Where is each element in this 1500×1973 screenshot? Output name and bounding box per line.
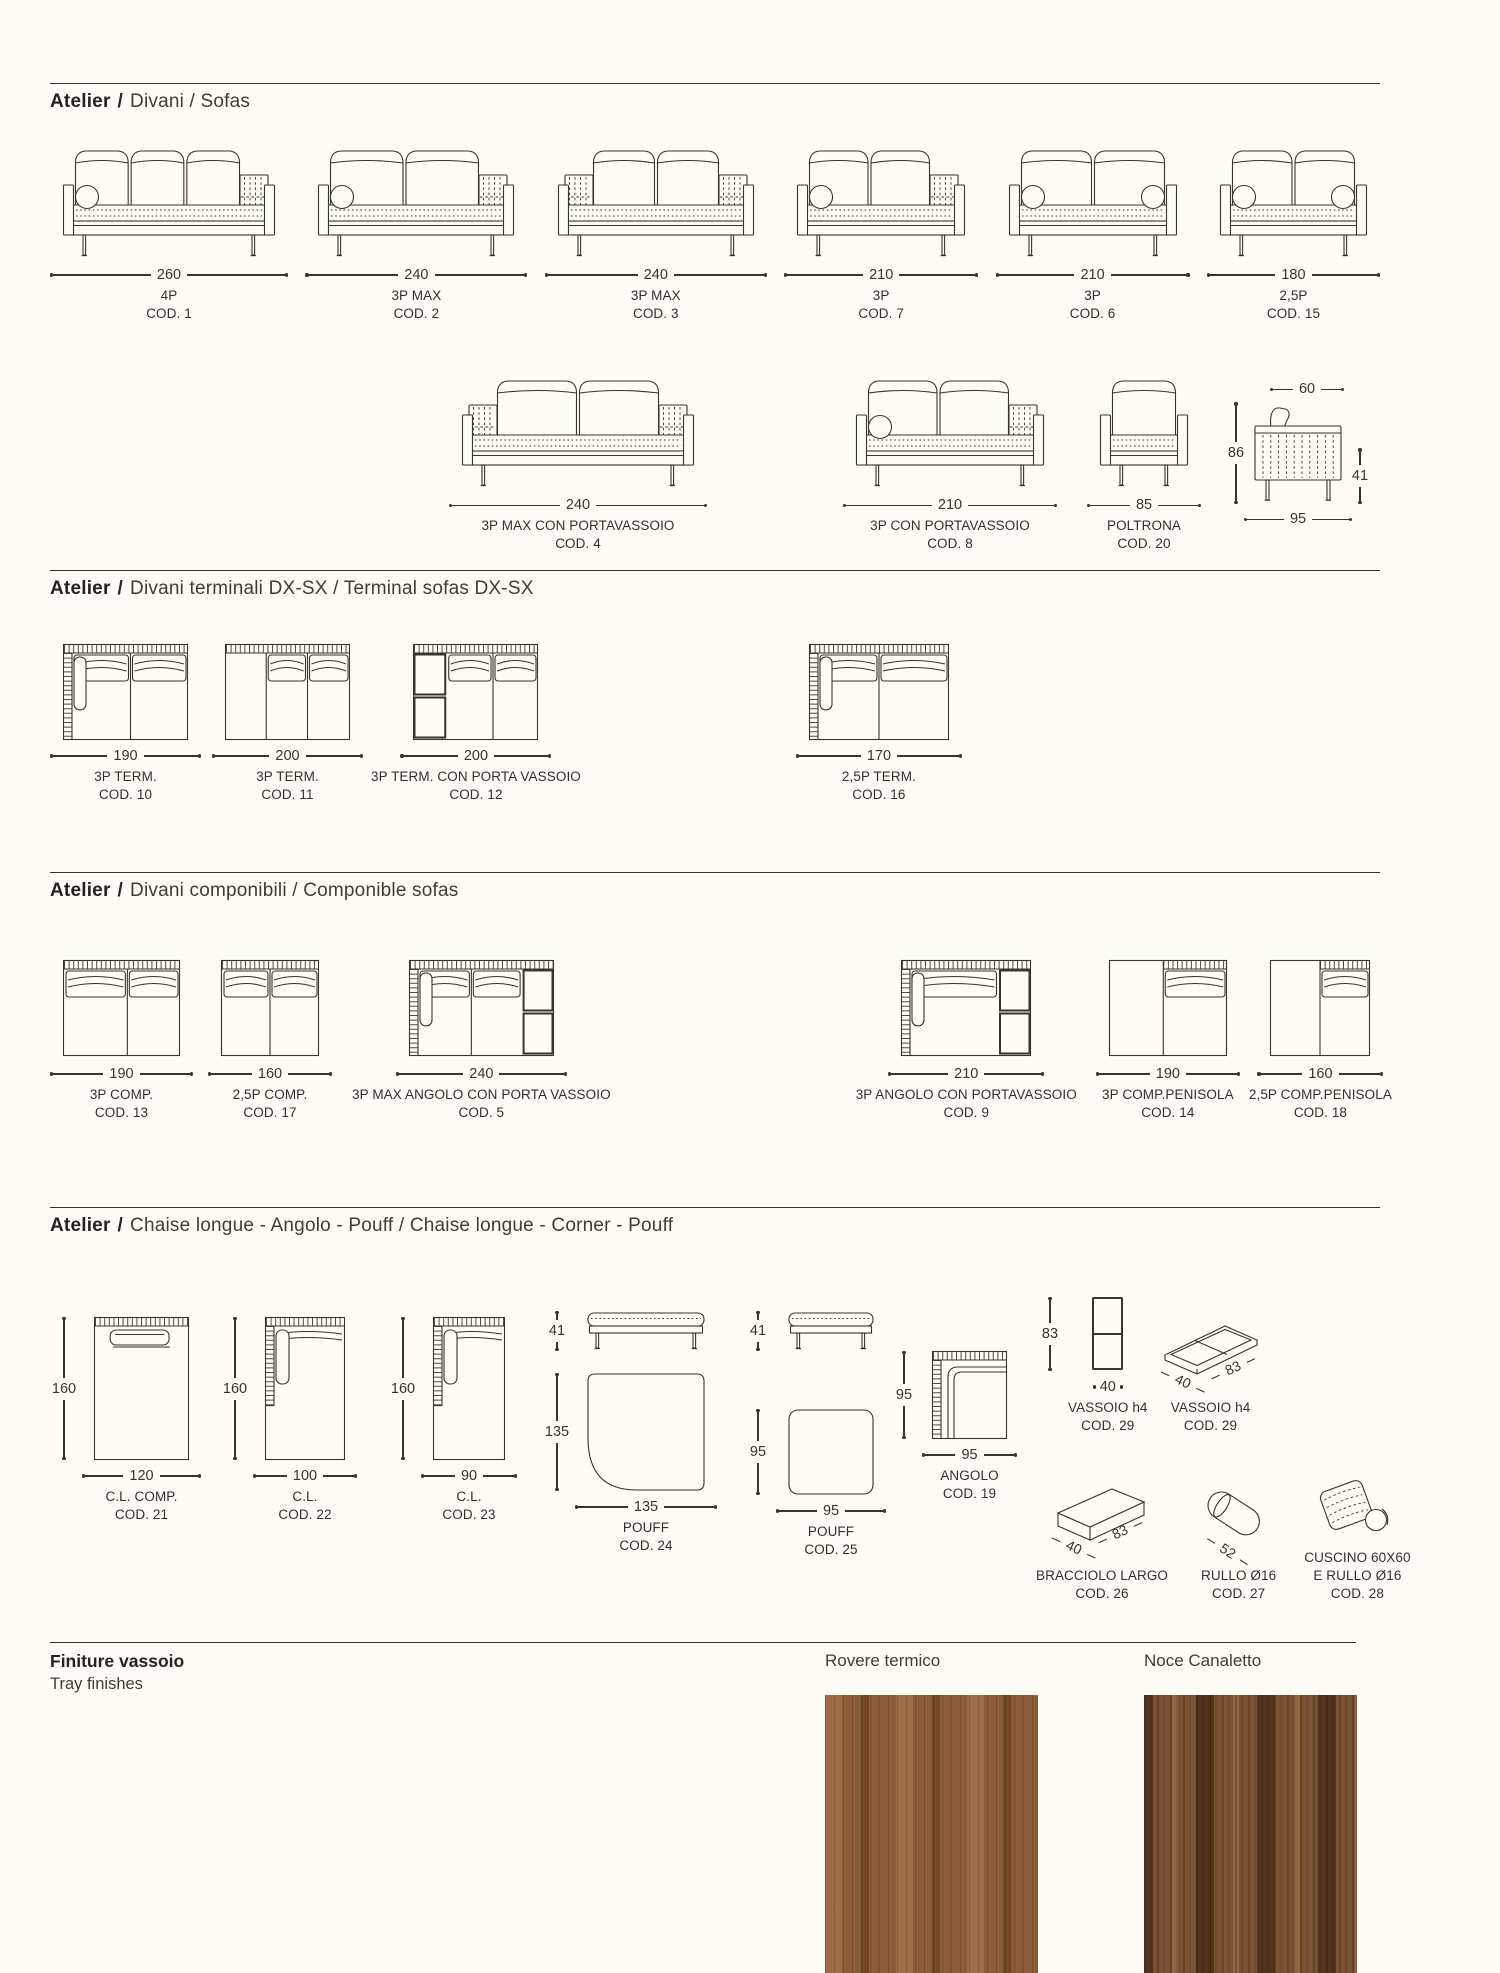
item-label: ANGOLOCOD. 19 — [940, 1467, 998, 1503]
dimension-horizontal: 240 — [305, 267, 527, 283]
wood-swatch-rovere-termico — [825, 1695, 1038, 1973]
product-item-cod17: 1602,5P COMP.COD. 17 — [208, 960, 332, 1122]
section-finiture: Finiture vassoio Tray finishes Rovere te… — [0, 1642, 1500, 1973]
sofa-top-diagram — [63, 960, 180, 1056]
dimension-horizontal: 190 — [1096, 1066, 1240, 1082]
catalog-page: Atelier/Divani / Sofas 2604PCOD. 12403P … — [0, 0, 1500, 1973]
dimension-vertical: 41 — [1346, 448, 1374, 504]
svg-text:40: 40 — [1064, 1537, 1085, 1558]
dimension-horizontal: 240 — [396, 1066, 567, 1082]
sofa-front-diagram — [462, 369, 694, 489]
tray-flat-diagram — [1092, 1297, 1123, 1371]
diagram-row: 160120C.L. COMP.COD. 21160100C.L.COD. 22… — [50, 1283, 1500, 1603]
item-label: POLTRONACOD. 20 — [1107, 517, 1181, 553]
product-item-cod13: 1903P COMP.COD. 13 — [50, 960, 193, 1122]
dimension-horizontal: 200 — [400, 748, 551, 764]
dimension-horizontal: 120 — [82, 1468, 201, 1484]
section-title: Atelier/Chaise longue - Angolo - Pouff /… — [50, 1215, 1500, 1237]
item-label: 2,5PCOD. 15 — [1267, 287, 1320, 323]
dimension-vertical: 86 — [1222, 402, 1250, 504]
sofa-top-diagram — [413, 644, 538, 740]
item-label: 3P TERM.COD. 11 — [256, 768, 319, 804]
dimension-horizontal: 135 — [575, 1499, 717, 1515]
item-label: 3P MAXCOD. 2 — [391, 287, 441, 323]
product-item-cod12: 2003P TERM. CON PORTA VASSOIOCOD. 12 — [371, 644, 581, 804]
roll-cushion-diagram: 52 — [1202, 1491, 1276, 1555]
product-item: 8340VASSOIO h4COD. 294083VASSOIO h4COD. … — [1036, 1297, 1411, 1603]
svg-text:52: 52 — [1217, 1540, 1239, 1562]
dimension-vertical: 41 — [543, 1311, 571, 1351]
item-label: 3P MAXCOD. 3 — [631, 287, 681, 323]
diagram-row: 2403P MAX CON PORTAVASSOIOCOD. 42103P CO… — [50, 369, 1500, 553]
section-terminali: Atelier/Divani terminali DX-SX / Termina… — [0, 570, 1500, 872]
section-title: Atelier/Divani / Sofas — [50, 91, 1500, 113]
item-label: 3P ANGOLO CON PORTAVASSOIOCOD. 9 — [856, 1086, 1077, 1122]
dimension-horizontal: 210 — [996, 267, 1190, 283]
finish-label: Rovere termico — [825, 1651, 1038, 1671]
dimension-horizontal: 95 — [1244, 511, 1352, 527]
finishes-title-bold: Finiture vassoio — [50, 1651, 184, 1672]
diagram-row: 2604PCOD. 12403P MAXCOD. 22403P MAXCOD. … — [50, 139, 1380, 323]
product-item-cod4: 2403P MAX CON PORTAVASSOIOCOD. 4 — [449, 369, 707, 553]
item-label: C.L.COD. 22 — [278, 1488, 331, 1524]
dimension-horizontal: 260 — [50, 267, 288, 283]
dimension-vertical: 95 — [744, 1409, 772, 1495]
sofa-front-diagram — [558, 139, 754, 259]
product-item-cod7: 2103PCOD. 7 — [784, 139, 978, 323]
dimension-horizontal: 210 — [888, 1066, 1044, 1082]
item-label: 3P COMP.COD. 13 — [90, 1086, 153, 1122]
section-rule — [50, 83, 1380, 84]
product-item-cod25: 419595POUFFCOD. 25 — [744, 1311, 886, 1559]
section-divani: Atelier/Divani / Sofas 2604PCOD. 12403P … — [0, 83, 1500, 570]
product-item-cod21: 160120C.L. COMP.COD. 21 — [50, 1317, 201, 1524]
product-item-cod20: 85POLTRONACOD. 20 — [1087, 369, 1201, 553]
product-item-cod14: 1903P COMP.PENISOLACOD. 14 — [1096, 960, 1240, 1122]
diagram-subrow: 4083BRACCIOLO LARGOCOD. 2652RULLO Ø16COD… — [1036, 1473, 1411, 1603]
dimension-horizontal: 210 — [843, 497, 1057, 513]
item-label: BRACCIOLO LARGOCOD. 26 — [1036, 1567, 1168, 1603]
item-label: POUFFCOD. 24 — [619, 1519, 672, 1555]
item-label: CUSCINO 60X60E RULLO Ø16COD. 28 — [1304, 1549, 1410, 1603]
sofa-top-diagram — [1109, 960, 1227, 1056]
item-label: POUFFCOD. 25 — [804, 1523, 857, 1559]
dimension-horizontal: 100 — [253, 1468, 357, 1484]
item-label: 4PCOD. 1 — [146, 287, 192, 323]
product-item-cod3: 2403P MAXCOD. 3 — [545, 139, 767, 323]
sofa-top-diagram — [1270, 960, 1370, 1056]
sofa-side-diagram — [1254, 404, 1342, 504]
item-label: 3P TERM. CON PORTA VASSOIOCOD. 12 — [371, 768, 581, 804]
sofa-top-diagram — [225, 644, 350, 740]
product-item-cod18: 1602,5P COMP.PENISOLACOD. 18 — [1249, 960, 1392, 1122]
item-label: 3P CON PORTAVASSOIOCOD. 8 — [870, 517, 1030, 553]
sofa-front-diagram — [1220, 139, 1367, 259]
section-chaise-pouff: Atelier/Chaise longue - Angolo - Pouff /… — [0, 1207, 1500, 1642]
finishes-title-sub: Tray finishes — [50, 1675, 184, 1694]
dimension-horizontal: 170 — [796, 748, 962, 764]
product-item-cod11: 2003P TERM.COD. 11 — [212, 644, 363, 804]
dimension-vertical: 135 — [543, 1373, 571, 1491]
dimension-horizontal: 190 — [50, 1066, 193, 1082]
finish-rovere-termico: Rovere termico — [825, 1651, 1038, 1973]
dimension-horizontal: 60 — [1270, 381, 1344, 397]
pouf-side-diagram — [788, 1311, 874, 1351]
product-item-cod1: 2604PCOD. 1 — [50, 139, 288, 323]
sofa-front-diagram — [856, 369, 1044, 489]
finish-label: Noce Canaletto — [1144, 1651, 1357, 1671]
dimension-horizontal: 85 — [1087, 497, 1201, 513]
chaise-longue-top-diagram — [265, 1317, 345, 1460]
armchair-front-diagram — [1100, 369, 1188, 489]
sofa-top-diagram — [901, 960, 1031, 1056]
pouf-side-diagram — [587, 1311, 705, 1351]
diagram-row: 1903P TERM.COD. 102003P TERM.COD. 112003… — [50, 644, 1500, 804]
item-label: 3P MAX ANGOLO CON PORTA VASSOIOCOD. 5 — [352, 1086, 611, 1122]
item-label: C.L. COMP.COD. 21 — [105, 1488, 177, 1524]
finish-noce-canaletto: Noce Canaletto — [1144, 1651, 1357, 1973]
product-item-cod29: 8340VASSOIO h4COD. 29 — [1036, 1297, 1148, 1435]
tray-iso-diagram: 4083 — [1161, 1321, 1261, 1387]
product-item-cod5: 2403P MAX ANGOLO CON PORTA VASSOIOCOD. 5 — [352, 960, 611, 1122]
section-title: Atelier/Divani terminali DX-SX / Termina… — [50, 578, 1500, 600]
product-item-cod29: 4083VASSOIO h4COD. 29 — [1161, 1321, 1261, 1435]
product-item-cod28: CUSCINO 60X60E RULLO Ø16COD. 28 — [1304, 1473, 1410, 1603]
sofa-top-diagram — [221, 960, 319, 1056]
armrest-iso-diagram: 4083 — [1054, 1485, 1150, 1555]
section-rule — [50, 872, 1380, 873]
dimension-horizontal: 240 — [545, 267, 767, 283]
item-label: VASSOIO h4COD. 29 — [1068, 1399, 1148, 1435]
sofa-top-diagram — [63, 644, 188, 740]
section-rule — [50, 1207, 1380, 1208]
diagram-row: 1903P COMP.COD. 131602,5P COMP.COD. 1724… — [50, 960, 1500, 1122]
dimension-horizontal: 95 — [922, 1447, 1017, 1463]
dimension-horizontal: 90 — [421, 1468, 517, 1484]
square-cushion-diagram — [1318, 1473, 1396, 1537]
sofa-front-diagram — [63, 139, 275, 259]
corner-top-diagram — [932, 1351, 1007, 1439]
sofa-front-diagram — [318, 139, 514, 259]
dimension-vertical: 41 — [744, 1311, 772, 1351]
item-label: 3P MAX CON PORTAVASSOIOCOD. 4 — [481, 517, 674, 553]
section-componibili: Atelier/Divani componibili / Componible … — [0, 872, 1500, 1207]
sofa-front-diagram — [1009, 139, 1177, 259]
item-label: 2,5P COMP.PENISOLACOD. 18 — [1249, 1086, 1392, 1122]
sofa-front-diagram — [797, 139, 965, 259]
wood-swatch-noce-canaletto — [1144, 1695, 1357, 1973]
dimension-vertical: 83 — [1036, 1297, 1064, 1371]
dimension-horizontal: 40 — [1085, 1379, 1130, 1395]
dimension-vertical: 160 — [389, 1317, 417, 1460]
dimension-horizontal: 200 — [212, 748, 363, 764]
product-item-cod10: 1903P TERM.COD. 10 — [50, 644, 201, 804]
item-label: 3P COMP.PENISOLACOD. 14 — [1102, 1086, 1234, 1122]
item-label: VASSOIO h4COD. 29 — [1171, 1399, 1251, 1435]
section-rule — [50, 570, 1380, 571]
product-item-cod16: 1702,5P TERM.COD. 16 — [796, 644, 962, 804]
dimension-horizontal: 210 — [784, 267, 978, 283]
item-label: RULLO Ø16COD. 27 — [1201, 1567, 1276, 1603]
product-item-cod9: 2103P ANGOLO CON PORTAVASSOIOCOD. 9 — [856, 960, 1077, 1122]
product-item-cod27: 52RULLO Ø16COD. 27 — [1201, 1491, 1276, 1603]
finishes-title: Finiture vassoio Tray finishes — [50, 1651, 184, 1694]
dimension-horizontal: 180 — [1207, 267, 1380, 283]
product-item-cod24: 41135135POUFFCOD. 24 — [543, 1311, 717, 1555]
item-label: 2,5P TERM.COD. 16 — [842, 768, 916, 804]
dimension-horizontal: 95 — [776, 1503, 886, 1519]
section-title: Atelier/Divani componibili / Componible … — [50, 880, 1500, 902]
dimension-vertical: 160 — [50, 1317, 78, 1460]
product-item-cod23: 16090C.L.COD. 23 — [389, 1317, 517, 1524]
dimension-horizontal: 160 — [208, 1066, 332, 1082]
sofa-top-diagram — [809, 644, 949, 740]
dimension-horizontal: 240 — [449, 497, 707, 513]
product-item-cod26: 4083BRACCIOLO LARGOCOD. 26 — [1036, 1485, 1168, 1603]
dimension-horizontal: 190 — [50, 748, 201, 764]
item-label: 2,5P COMP.COD. 17 — [233, 1086, 308, 1122]
product-item-cod19: 9595ANGOLOCOD. 19 — [890, 1351, 1017, 1503]
item-label: 3PCOD. 7 — [858, 287, 904, 323]
pouf-top-diagram — [587, 1373, 705, 1491]
pouf-top-diagram — [788, 1409, 874, 1495]
item-label: C.L.COD. 23 — [442, 1488, 495, 1524]
product-item: 60864195 — [1222, 381, 1374, 527]
sofa-top-diagram — [409, 960, 554, 1056]
chaise-longue-top-diagram — [94, 1317, 189, 1460]
diagram-subrow: 8340VASSOIO h4COD. 294083VASSOIO h4COD. … — [1036, 1297, 1261, 1435]
product-item-cod22: 160100C.L.COD. 22 — [221, 1317, 357, 1524]
product-item-cod8: 2103P CON PORTAVASSOIOCOD. 8 — [843, 369, 1057, 553]
dimension-vertical: 160 — [221, 1317, 249, 1460]
finishes-area: Finiture vassoio Tray finishes Rovere te… — [50, 1643, 1500, 1971]
dimension-horizontal: 160 — [1257, 1066, 1383, 1082]
item-label: 3PCOD. 6 — [1070, 287, 1116, 323]
product-item-cod2: 2403P MAXCOD. 2 — [305, 139, 527, 323]
dimension-vertical: 95 — [890, 1351, 918, 1439]
svg-text:40: 40 — [1172, 1371, 1193, 1392]
product-item-cod6: 2103PCOD. 6 — [996, 139, 1190, 323]
product-item-cod15: 1802,5PCOD. 15 — [1207, 139, 1380, 323]
chaise-longue-top-diagram — [433, 1317, 505, 1460]
item-label: 3P TERM.COD. 10 — [94, 768, 157, 804]
